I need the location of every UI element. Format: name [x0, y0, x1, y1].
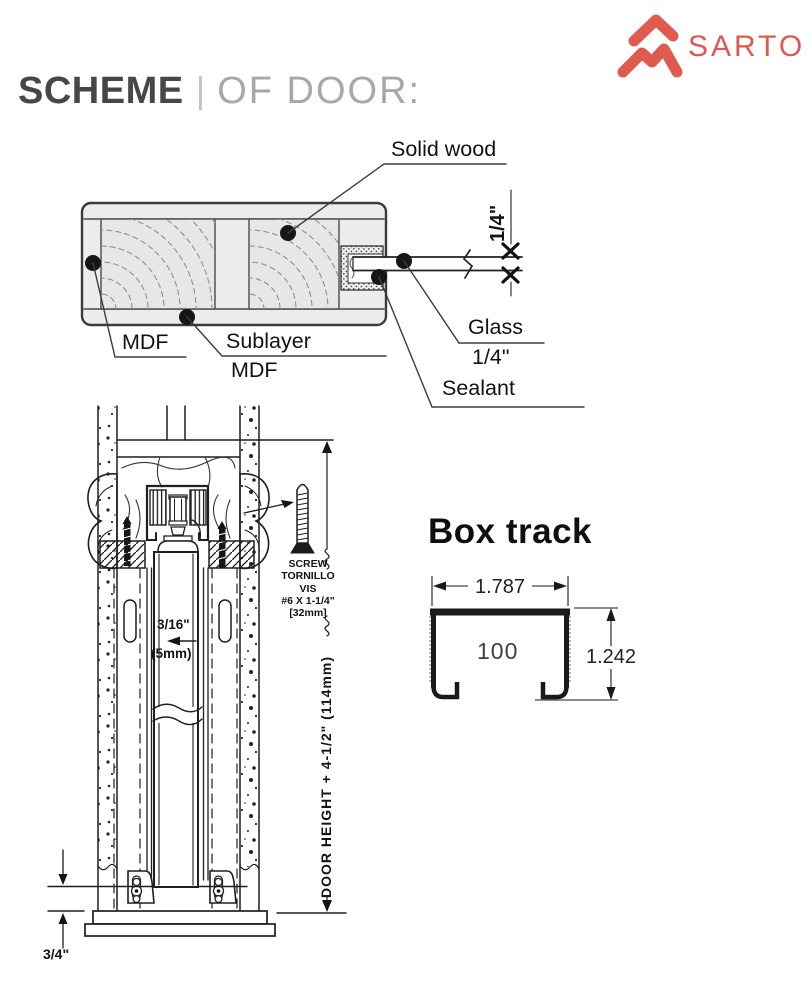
screw-note-line: #6 X 1-1/4" [271, 595, 345, 607]
dim-glass-quarter-inch: 1/4" [487, 205, 510, 242]
screw-note-line: VIS [271, 583, 345, 595]
label-sealant: Sealant [442, 376, 515, 401]
label-mdf: MDF [122, 330, 169, 355]
screw-note-line: SCREW [271, 558, 345, 570]
dim-door-height: DOOR HEIGHT + 4-1/2" (114mm) [318, 656, 334, 898]
sarto-logo-icon [617, 14, 683, 80]
dim-gap-inches: 3/16" [157, 617, 190, 632]
screw-note-line: TORNILLO [271, 570, 345, 582]
label-solid-wood: Solid wood [391, 137, 496, 162]
dim-gap-metric: (5mm) [151, 646, 192, 661]
dim-track-height: 1.242 [582, 646, 640, 669]
dim-track-width: 1.787 [468, 576, 532, 599]
label-glass-thickness: 1/4" [472, 345, 510, 370]
page-title-secondary: OF DOOR: [217, 70, 421, 112]
screw-note-line: [32mm] [271, 607, 345, 619]
label-glass: Glass [468, 315, 523, 340]
box-track-title: Box track [428, 512, 592, 552]
scheme-of-door-page: SARTO SCHEME|OF DOOR: Solid wood MDF Sub… [0, 0, 812, 990]
page-title: SCHEME|OF DOOR: [18, 70, 421, 113]
page-title-primary: SCHEME [18, 70, 184, 112]
brand-name: SARTO [688, 30, 805, 64]
label-sublayer-mdf: MDF [231, 358, 278, 383]
track-model-number: 100 [477, 638, 518, 665]
page-title-divider: | [196, 70, 206, 111]
dim-floor-clearance: 3/4" [43, 946, 69, 962]
label-sublayer: Sublayer [226, 329, 311, 354]
screw-note: SCREW TORNILLO VIS #6 X 1-1/4" [32mm] [271, 558, 345, 619]
